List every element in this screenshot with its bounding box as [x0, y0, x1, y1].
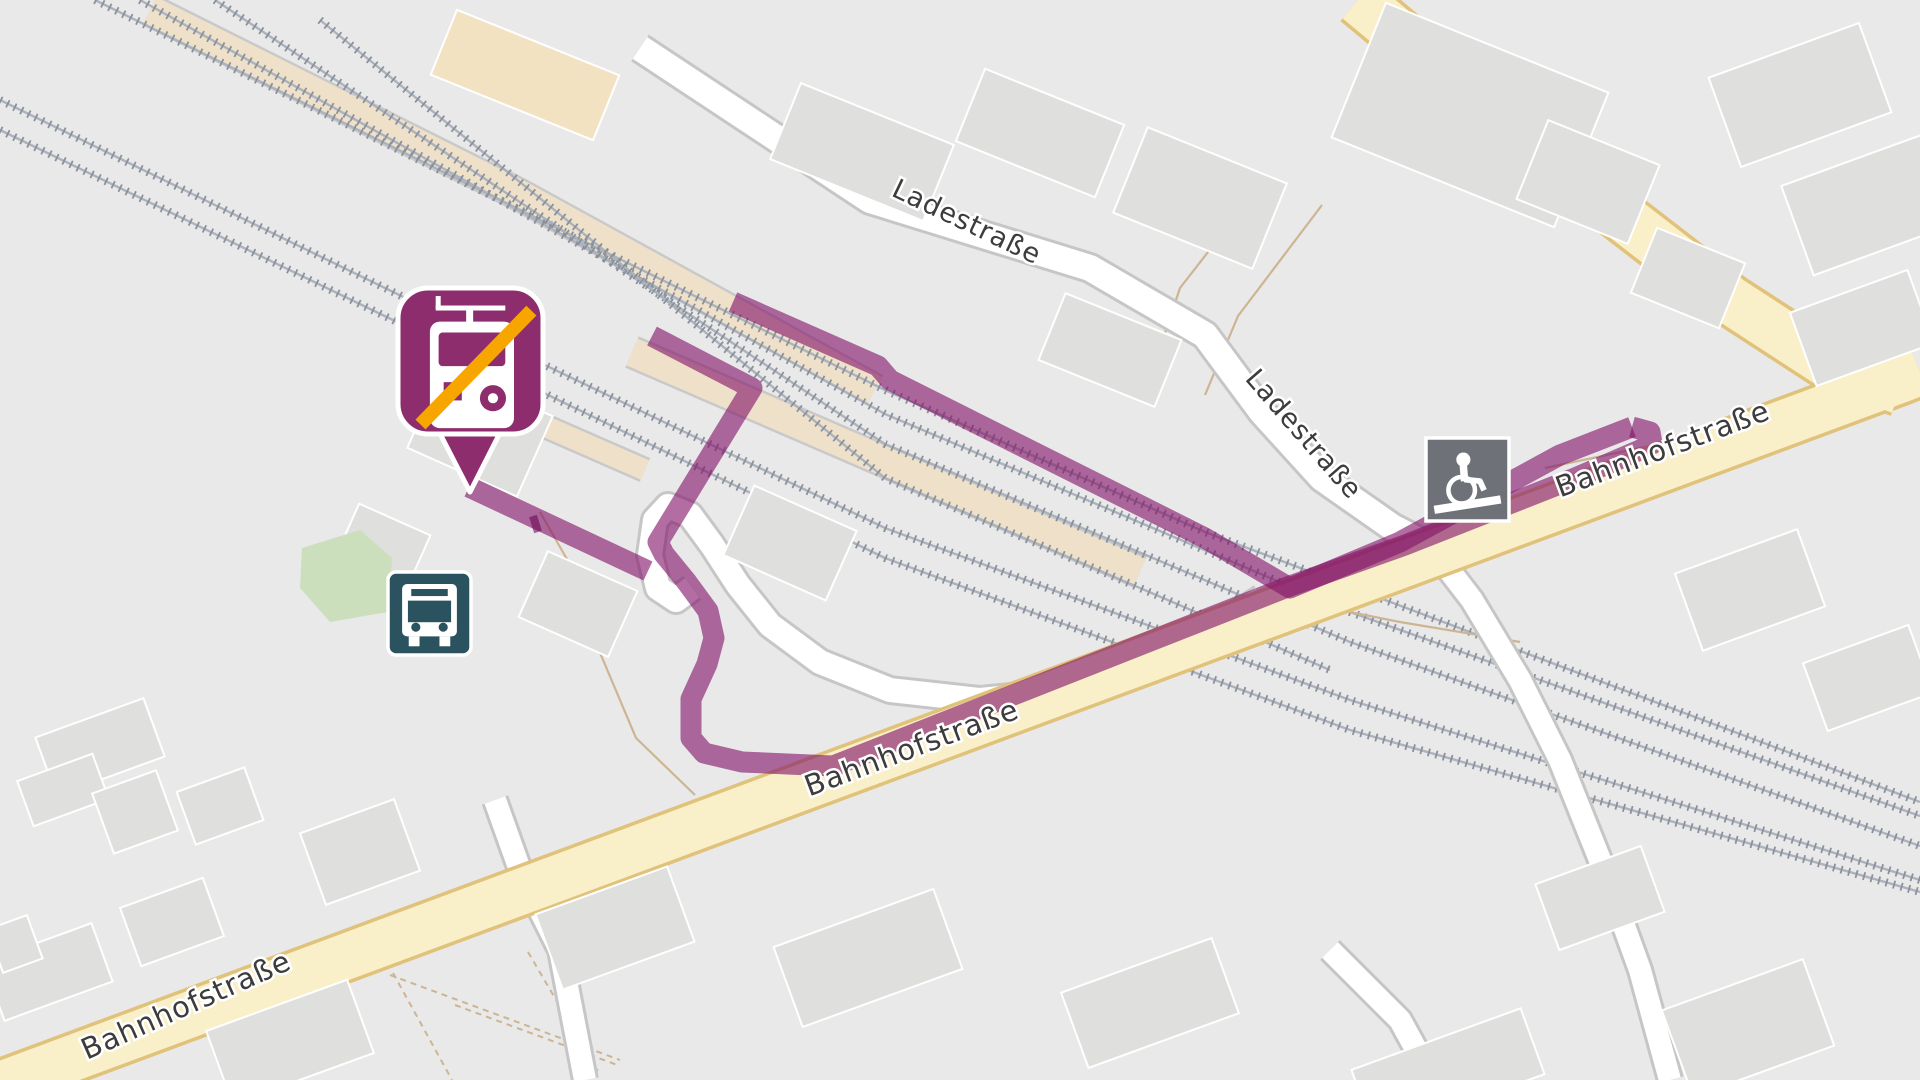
bus-windshield	[408, 601, 451, 623]
wheelchair-head	[1456, 453, 1470, 467]
map-canvas[interactable]: LadestraßeLadestraßeBahnhofstraßeBahnhof…	[0, 0, 1920, 1080]
bus-headlight	[411, 623, 420, 632]
bus-wheel	[439, 636, 450, 646]
tram-pantograph	[436, 296, 441, 308]
tram-pantograph	[436, 306, 506, 311]
bus-wheel	[409, 636, 420, 646]
tram-pantograph	[466, 310, 473, 323]
map-view[interactable]: LadestraßeLadestraßeBahnhofstraßeBahnhof…	[0, 0, 1920, 1080]
tram-wheel-hub	[488, 393, 498, 403]
route-stub	[533, 516, 538, 532]
bus-sign	[411, 589, 448, 596]
bus-headlight	[439, 623, 448, 632]
